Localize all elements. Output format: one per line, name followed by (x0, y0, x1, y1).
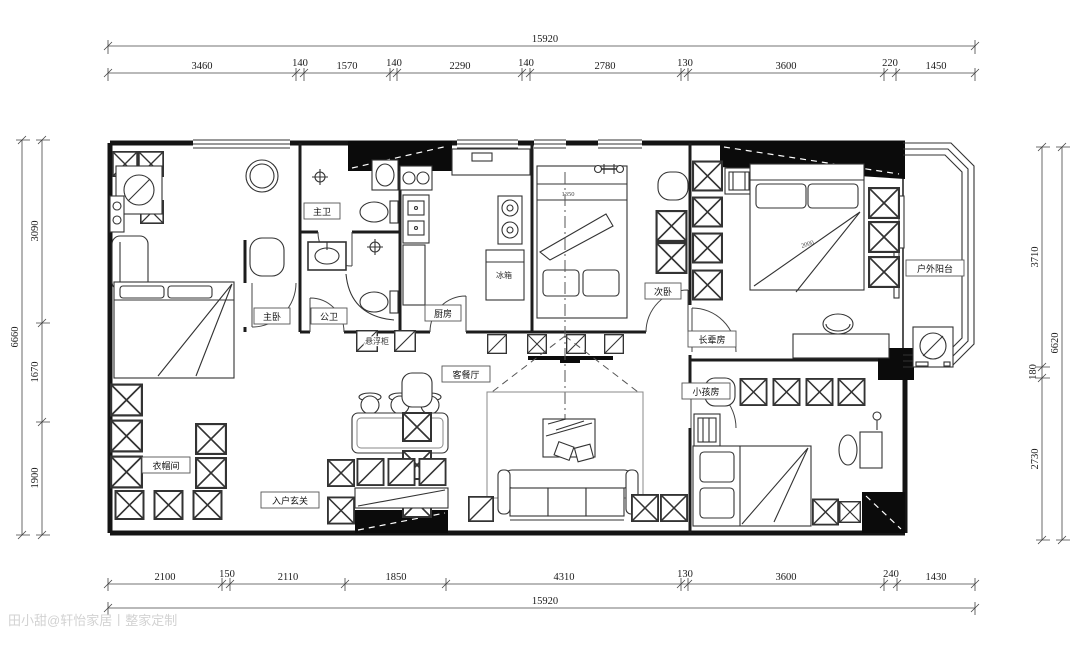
room-label-master-bath: 主卫 (304, 203, 340, 219)
side-table (632, 495, 658, 521)
balcony-bay: 洗衣机 (894, 143, 974, 367)
watermark: 田小甜@轩怡家居丨整家定制 (8, 613, 177, 628)
dim-seg: 2730 (1030, 449, 1041, 470)
double-bed-icon: 1350 (537, 166, 627, 318)
dim-seg: 3090 (30, 221, 41, 242)
desk-chair-icon (839, 412, 882, 468)
ceiling-lamp-icon (246, 160, 278, 192)
corner-shelf (250, 238, 284, 276)
wardrobe (657, 243, 687, 273)
chair-icon (658, 172, 688, 200)
dim-seg: 130 (677, 58, 693, 69)
left-dimension-chain: 6660 3090 1670 1900 (10, 136, 50, 539)
double-burner-icon (400, 166, 432, 190)
floor-drain-icon (367, 239, 383, 255)
svg-text:主卫: 主卫 (313, 206, 331, 217)
stove-icon (498, 196, 522, 244)
svg-text:入户玄关: 入户玄关 (272, 495, 308, 506)
svg-text:次卧: 次卧 (654, 286, 672, 297)
sofa-icon (498, 470, 638, 520)
dressing-table-icon (793, 314, 889, 358)
toilet-icon (360, 201, 398, 223)
kitchen-sink-icon (403, 195, 429, 243)
room-label-kids-room: 小孩房 (682, 383, 730, 399)
right-dimension-chain: 3710 180 2730 6620 (1028, 143, 1070, 544)
svg-text:客餐厅: 客餐厅 (452, 369, 479, 380)
dim-seg: 1430 (926, 572, 947, 583)
floorplan-page: 15920 3460 140 1570 140 2290 140 2780 13… (0, 0, 1080, 647)
floor-drain-icon (312, 169, 328, 185)
dim-seg: 1900 (30, 468, 41, 489)
svg-text:冰箱: 冰箱 (496, 270, 512, 280)
elder-room-furniture: 2000 (693, 162, 899, 358)
single-bed-icon (693, 446, 811, 526)
dim-seg: 1670 (30, 362, 41, 383)
room-label-second-bedroom: 次卧 (645, 283, 681, 299)
dim-seg: 140 (518, 58, 534, 69)
dim-seg: 220 (882, 58, 898, 69)
ac-unit-icon (725, 168, 753, 194)
svg-text:衣帽间: 衣帽间 (152, 460, 179, 471)
bed-width-label: 1350 (562, 191, 575, 198)
svg-text:长辈房: 长辈房 (698, 334, 725, 345)
room-label-public-bath: 公卫 (311, 308, 347, 324)
dim-seg: 240 (883, 569, 899, 580)
kids-room-furniture (693, 378, 882, 526)
dim-seg: 1850 (386, 572, 407, 583)
dim-seg: 150 (219, 569, 235, 580)
svg-text:悬浮柜: 悬浮柜 (365, 336, 389, 346)
svg-text:厨房: 厨房 (434, 308, 452, 319)
kitchen-fixtures: 冰箱 (400, 149, 530, 305)
utility-corner (110, 152, 284, 290)
left-total-dim: 6660 (10, 327, 21, 348)
wardrobe (657, 211, 687, 241)
svg-text:主卧: 主卧 (263, 311, 281, 322)
laundry-sink-icon (110, 196, 124, 232)
coffee-table-icon (543, 419, 595, 462)
svg-text:小孩房: 小孩房 (692, 386, 719, 397)
dim-seg: 2780 (595, 61, 616, 72)
dim-seg: 2290 (450, 61, 471, 72)
dim-seg: 3600 (776, 572, 797, 583)
washing-machine-icon (913, 327, 953, 367)
room-label-outdoor-balcony: 户外阳台 (906, 260, 964, 276)
room-label-kitchen: 厨房 (425, 305, 461, 321)
floorplan-drawing: 15920 3460 140 1570 140 2290 140 2780 13… (0, 0, 1080, 647)
room-label-entry-foyer: 入户玄关 (261, 492, 319, 508)
dim-seg: 3710 (1030, 247, 1041, 268)
dim-seg: 4310 (554, 572, 575, 583)
dim-seg: 180 (1028, 364, 1039, 380)
dining-set-icon (352, 393, 448, 453)
room-label-master-bedroom: 主卧 (254, 308, 290, 324)
dim-seg: 3460 (192, 61, 213, 72)
bottom-dimension-chain: 2100 150 2110 1850 4310 130 3600 240 143… (104, 569, 979, 615)
svg-text:公卫: 公卫 (320, 312, 338, 322)
cloakroom-cabinets (111, 385, 226, 519)
double-bed-icon: 2000 (750, 164, 864, 292)
dim-seg: 130 (677, 569, 693, 580)
dim-seg: 140 (292, 58, 308, 69)
fridge-icon: 冰箱 (486, 250, 524, 300)
dim-seg: 3600 (776, 61, 797, 72)
dim-seg: 2110 (278, 572, 299, 583)
room-label-cloakroom: 衣帽间 (142, 457, 190, 473)
svg-text:户外阳台: 户外阳台 (917, 263, 953, 274)
floating-cabinet-icon: 悬浮柜 (357, 331, 416, 352)
right-total-dim: 6620 (1050, 333, 1061, 354)
top-dimension-chain: 15920 3460 140 1570 140 2290 140 2780 13… (104, 34, 979, 81)
counter (403, 245, 425, 305)
dim-seg: 1450 (926, 61, 947, 72)
bottom-total-dim: 15920 (532, 596, 558, 607)
dim-seg: 2100 (155, 572, 176, 583)
room-label-elder-room: 长辈房 (688, 331, 736, 347)
toilet-icon (360, 291, 398, 313)
room-label-living-dining: 客餐厅 (442, 366, 490, 382)
master-bed-icon (114, 282, 234, 378)
side-table (469, 497, 493, 521)
top-total-dim: 15920 (532, 34, 558, 45)
side-table (661, 495, 687, 521)
radiator-icon (694, 414, 720, 446)
dim-seg: 1570 (337, 61, 358, 72)
dim-seg: 140 (386, 58, 402, 69)
tv-cabinet (488, 335, 624, 363)
